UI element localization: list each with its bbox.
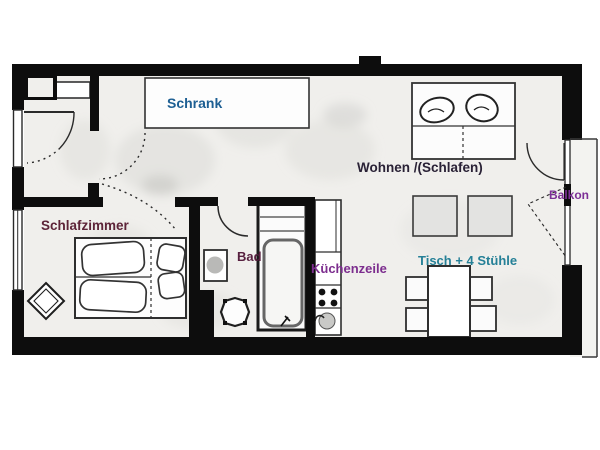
stove-burner-icon [331, 300, 338, 307]
chair [406, 277, 428, 300]
sofa-bed [412, 83, 515, 159]
stove-burner-icon [319, 300, 326, 307]
bedroom-window [14, 210, 23, 290]
wall-tick [359, 56, 381, 65]
outer-wall-bottom [12, 337, 582, 355]
chair [470, 306, 496, 331]
hall-wall [90, 76, 99, 131]
entry-niche [28, 78, 53, 97]
shower [258, 200, 306, 330]
outer-wall-left [12, 167, 24, 210]
room-label-esstisch: Tisch + 4 Stühle [418, 253, 517, 268]
dining-table [428, 266, 470, 337]
outer-wall-top [12, 64, 582, 76]
toilet [221, 298, 249, 326]
room-label-kuechenzeile: Küchenzeile [311, 261, 387, 276]
cabinet-cube [413, 196, 457, 236]
cabinet-cube [468, 196, 512, 236]
duvet-icon [79, 279, 146, 312]
room-label-bad: Bad [237, 249, 262, 264]
room-label-schlafzimmer: Schlafzimmer [41, 218, 129, 233]
stove-burner-icon [319, 289, 326, 296]
floor-plan-image: Schrank Wohnen /(Schlafen) Balkon Schlaf… [0, 0, 600, 450]
outer-wall-right [562, 265, 582, 355]
bedroom-wall [24, 197, 103, 207]
duvet-icon [81, 241, 145, 276]
outer-wall-right [562, 64, 582, 140]
bath-wall-top [200, 197, 218, 206]
entry-shelf [56, 82, 90, 98]
room-label-balkon: Balkon [549, 188, 589, 202]
washbasin [204, 250, 227, 281]
bath-wall-top [248, 197, 306, 206]
hall-wall-stub [88, 183, 99, 197]
pillow-icon [156, 243, 186, 273]
bedroom-bed [75, 238, 186, 318]
room-label-schrank: Schrank [167, 95, 222, 111]
chair [470, 277, 492, 300]
chair [406, 308, 428, 331]
bedroom-bath-wall-block [189, 290, 214, 337]
room-label-wohnen: Wohnen /(Schlafen) [357, 160, 483, 175]
pillow-icon [157, 271, 185, 299]
stove-burner-icon [331, 289, 338, 296]
